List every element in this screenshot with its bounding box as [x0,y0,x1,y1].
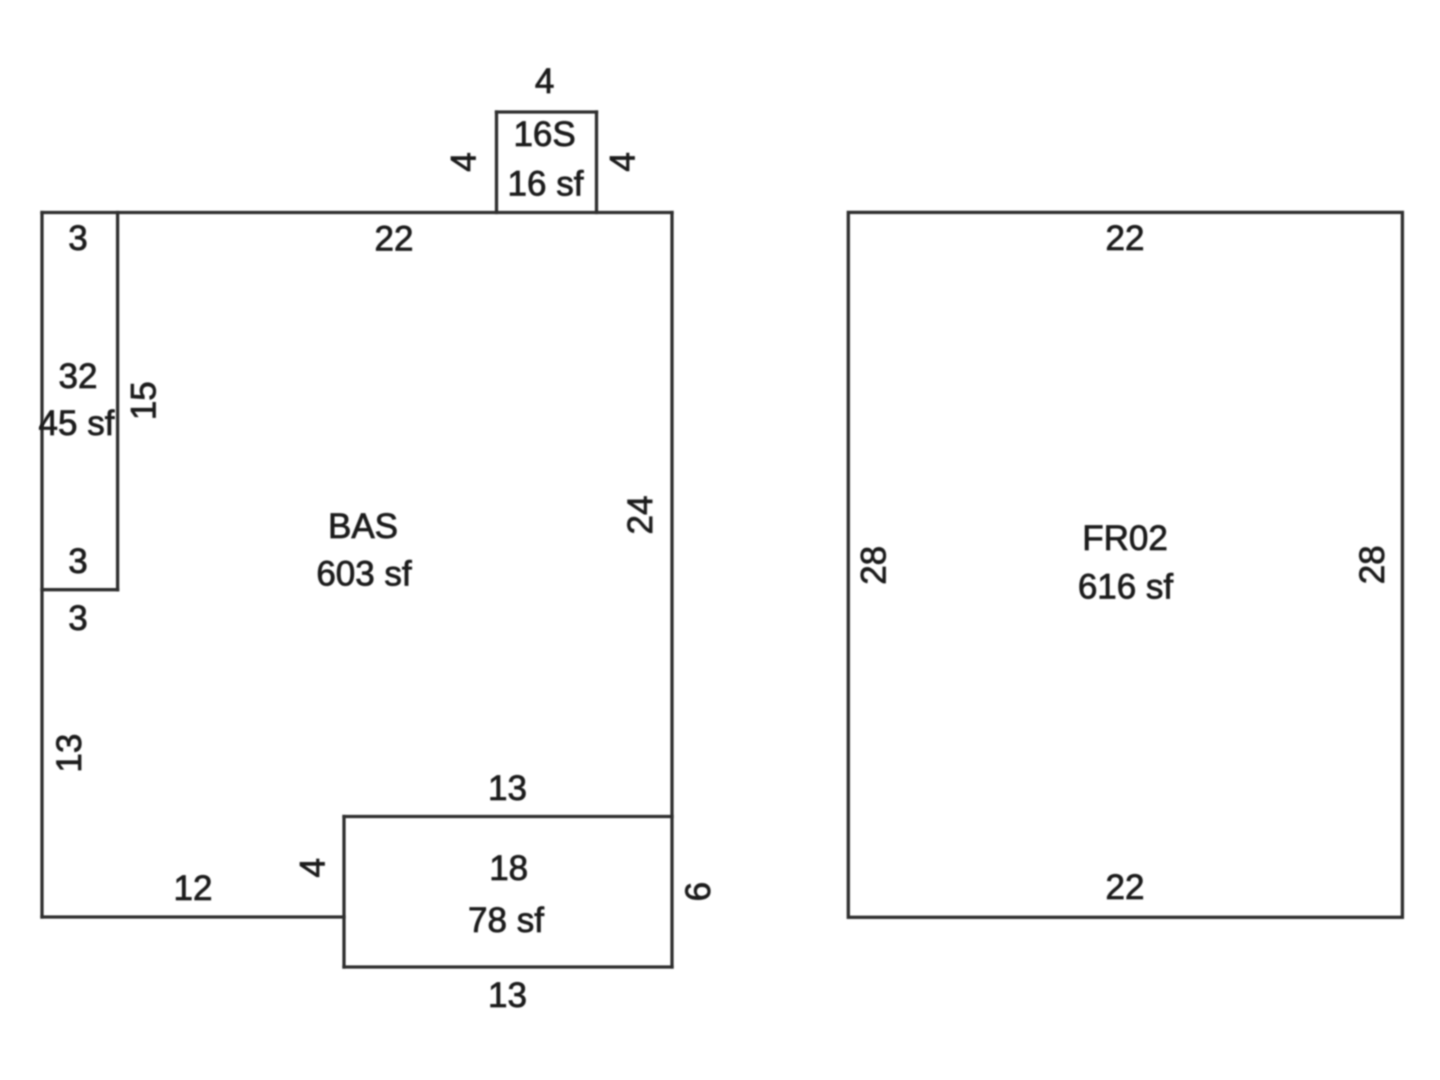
svg-text:4: 4 [445,152,484,171]
svg-text:FR02: FR02 [1082,519,1168,558]
svg-text:15: 15 [125,381,164,420]
svg-text:24: 24 [621,496,660,535]
svg-text:16 sf: 16 sf [508,165,584,204]
svg-text:18: 18 [489,849,528,888]
svg-text:45 sf: 45 sf [39,404,115,443]
svg-text:603 sf: 603 sf [316,555,412,594]
svg-text:22: 22 [1106,219,1145,258]
svg-text:13: 13 [488,769,527,808]
svg-text:4: 4 [535,62,554,101]
svg-text:6: 6 [679,882,718,901]
svg-text:3: 3 [68,219,87,258]
svg-text:16S: 16S [513,115,575,154]
svg-text:616 sf: 616 sf [1078,568,1174,607]
svg-text:32: 32 [59,357,98,396]
svg-text:4: 4 [294,858,333,877]
svg-text:3: 3 [68,542,87,581]
svg-text:78 sf: 78 sf [468,901,544,940]
svg-text:28: 28 [1353,545,1392,584]
svg-text:BAS: BAS [328,507,398,546]
svg-text:13: 13 [50,734,89,773]
svg-text:22: 22 [1106,868,1145,907]
svg-text:4: 4 [603,152,642,171]
svg-text:3: 3 [68,599,87,638]
svg-text:28: 28 [855,546,894,585]
svg-text:12: 12 [174,869,213,908]
svg-text:13: 13 [488,976,527,1015]
svg-text:22: 22 [375,220,414,259]
